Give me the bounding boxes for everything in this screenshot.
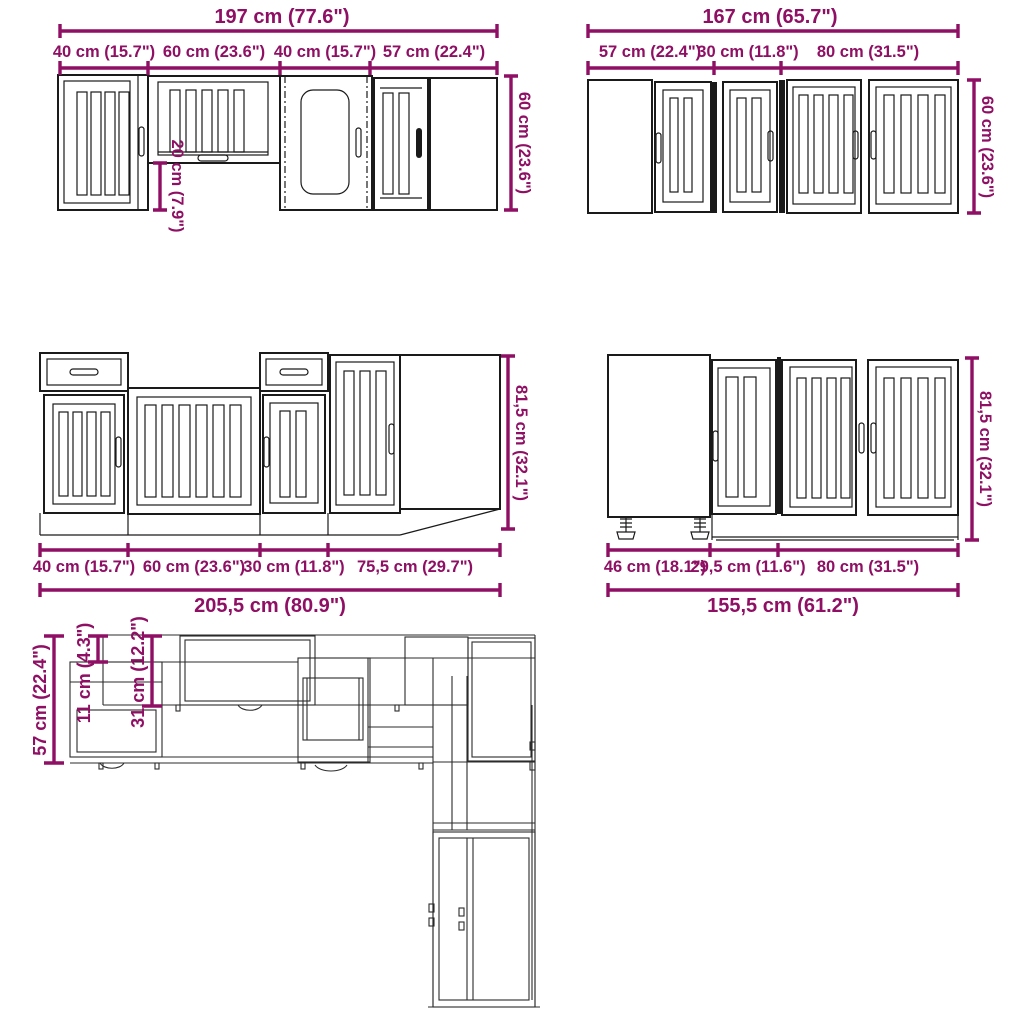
- door-handle: [264, 437, 269, 467]
- handle-notch: [100, 763, 124, 768]
- dim-segment-label-0: 57 cm (22.4"): [599, 43, 701, 61]
- dim-segment-label-2: 80 cm (31.5"): [817, 558, 919, 576]
- dim-segment-label-2: 80 cm (31.5"): [817, 43, 919, 61]
- door-handle: [356, 128, 361, 157]
- corner-bands: [368, 658, 433, 762]
- dim-wall-gap-label: 11 cm (4.3"): [74, 623, 94, 724]
- cabinet-junction: [779, 80, 785, 213]
- door-handle: [116, 437, 121, 467]
- door-handle: [871, 423, 876, 453]
- wall-cabinet-57-corner: [374, 78, 497, 210]
- base-corner-panel: [608, 355, 710, 539]
- drawer-handle: [70, 369, 98, 375]
- dim-total-label: 167 cm (65.7"): [702, 6, 837, 28]
- adjustable-foot: [617, 517, 635, 539]
- dim-segment-line: [60, 61, 497, 75]
- dim-segment-label-2: 30 cm (11.8"): [243, 558, 344, 576]
- adjustable-foot: [691, 517, 709, 539]
- hinge-mark: [459, 908, 464, 916]
- wall-cabinet-row-right: 167 cm (65.7") 57 cm (22.4") 30 cm (11.8…: [588, 6, 996, 213]
- door-handle: [713, 431, 718, 461]
- dim-segment-line: [40, 543, 500, 557]
- door-handle: [871, 131, 876, 159]
- dim-gap-line: [153, 163, 167, 210]
- dim-height-label: 81,5 cm (32.1"): [976, 391, 994, 507]
- plinth: [712, 514, 958, 540]
- dim-segment-label-3: 57 cm (22.4"): [383, 43, 485, 61]
- corner-blind-panel: [400, 355, 500, 509]
- dim-wall-depth-label: 31 cm (12.2"): [128, 616, 148, 728]
- dim-gap-label: 20 cm (7.9"): [168, 139, 186, 232]
- wall-cabinet-30-door: [723, 82, 777, 212]
- plan-wall-cabinet-60: [180, 636, 315, 710]
- door-handle: [389, 424, 394, 454]
- kitchen-dimension-diagram: 197 cm (77.6") 40 cm (15.7") 60 cm (23.6…: [0, 0, 1024, 1024]
- plan-base-cabinet-30: [298, 658, 370, 771]
- handle-notch: [238, 705, 262, 710]
- base-cabinet-80-double: [782, 360, 958, 515]
- hinge-mark: [459, 922, 464, 930]
- dim-segment-line: [588, 61, 958, 75]
- wall-cabinet-80-double: [787, 80, 958, 213]
- door-handle: [416, 128, 422, 158]
- wall-cabinet-corner-door: [655, 82, 711, 212]
- wall-cabinet-row-left: 197 cm (77.6") 40 cm (15.7") 60 cm (23.6…: [53, 6, 533, 233]
- corner-blind-panel: [430, 78, 497, 210]
- handle-notch: [315, 765, 347, 771]
- drawer-handle: [280, 369, 308, 375]
- dim-segment-label-1: 60 cm (23.6"): [143, 558, 245, 576]
- dim-total-label: 155,5 cm (61.2"): [707, 595, 859, 617]
- dim-height-label: 60 cm (23.6"): [978, 96, 996, 198]
- dim-height-label: 60 cm (23.6"): [515, 92, 533, 194]
- base-front-edge: [70, 757, 433, 763]
- dim-segment-label-2: 40 cm (15.7"): [274, 43, 376, 61]
- base-cabinet-row-left: 81,5 cm (32.1") 40 cm (15.7") 60 cm (23.…: [33, 353, 530, 617]
- plan-view: 57 cm (22.4") 11 cm (4.3") 31 cm (12.2"): [30, 616, 540, 1007]
- door-handle: [139, 127, 144, 156]
- wall-cabinet-60-short: [148, 76, 280, 163]
- base-cabinet-row-right: 81,5 cm (32.1") 46 cm (18.1") 29,5 cm (1…: [604, 355, 994, 617]
- door-handle: [656, 133, 661, 163]
- kitchen-dimension-diagram-page: 197 cm (77.6") 40 cm (15.7") 60 cm (23.6…: [0, 0, 1024, 1024]
- dim-depth-total-label: 57 cm (22.4"): [30, 644, 50, 756]
- dim-segment-label-0: 40 cm (15.7"): [33, 558, 135, 576]
- plan-wall-cabinet-right: [405, 637, 468, 705]
- door-handle: [859, 423, 864, 453]
- plan-corner-wall-cabinet: [468, 638, 535, 761]
- dim-total-label: 205,5 cm (80.9"): [194, 595, 346, 617]
- door-handle: [198, 155, 228, 161]
- wall-cabinet-40-door: [58, 75, 148, 210]
- dim-total-label: 197 cm (77.6"): [214, 6, 349, 28]
- base-cabinet-29: [712, 360, 776, 514]
- cabinet-junction: [711, 82, 717, 213]
- corner-blind-panel: [588, 80, 652, 213]
- dim-height-label: 81,5 cm (32.1"): [512, 385, 530, 501]
- base-cabinet-60-sink: [128, 388, 260, 514]
- plan-vertical-leg: [428, 635, 540, 1007]
- glass-panel: [301, 90, 349, 194]
- base-cabinet-40: [40, 353, 128, 513]
- dim-segment-label-1: 29,5 cm (11.6"): [690, 558, 805, 576]
- dim-segment-label-3: 75,5 cm (29.7"): [357, 558, 473, 576]
- dim-segment-label-1: 30 cm (11.8"): [697, 43, 798, 61]
- dim-segment-label-0: 40 cm (15.7"): [53, 43, 155, 61]
- cabinet-junction: [777, 357, 781, 514]
- base-cabinet-corner: [330, 355, 500, 513]
- dim-segment-label-1: 60 cm (23.6"): [163, 43, 265, 61]
- base-cabinet-30: [260, 353, 328, 513]
- dim-segment-line: [608, 543, 958, 557]
- wall-cabinet-40-glass: [280, 76, 372, 210]
